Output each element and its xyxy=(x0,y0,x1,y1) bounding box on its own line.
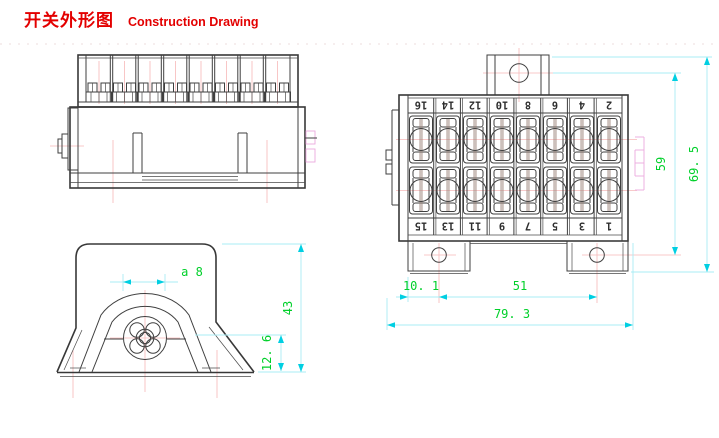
side-view-left-connector xyxy=(58,108,78,170)
terminal-number: 5 xyxy=(552,220,558,232)
terminal-number: 13 xyxy=(442,220,455,232)
dim-hole-offset-and-spacing: 10. 1 51 xyxy=(396,277,597,302)
drawing-svg: a 8 43 12. 6 xyxy=(0,0,719,438)
terminal-number: 14 xyxy=(442,99,455,111)
top-view-right-hidden-connector xyxy=(635,137,644,190)
dim-label-695: 69. 5 xyxy=(687,146,701,182)
top-mounting-tab xyxy=(487,55,549,95)
dim-screw-width: a 8 xyxy=(110,265,203,291)
terminal-number: 6 xyxy=(552,99,558,111)
top-view: 16 14 12 10 8 6 4 2 15 13 11 9 7 5 3 1 xyxy=(386,48,714,330)
terminal-number: 15 xyxy=(415,220,428,232)
side-view xyxy=(50,55,317,203)
drawing-sheet: 开关外形图 Construction Drawing xyxy=(0,0,719,438)
end-view: a 8 43 12. 6 xyxy=(57,244,306,398)
terminal-number: 16 xyxy=(415,99,428,111)
dim-label-59: 59 xyxy=(654,157,668,171)
terminal-number: 8 xyxy=(525,99,531,111)
dim-height-59: 59 xyxy=(553,73,681,255)
terminal-number: 10 xyxy=(496,99,509,111)
terminal-number: 4 xyxy=(579,99,585,111)
terminal-number: 9 xyxy=(499,220,505,232)
dim-label-793: 79. 3 xyxy=(494,307,530,321)
terminal-number: 2 xyxy=(606,99,612,111)
terminal-number: 3 xyxy=(579,220,585,232)
dim-label-43: 43 xyxy=(281,301,295,315)
dim-label-a8: a 8 xyxy=(181,265,203,279)
side-view-clamps xyxy=(86,83,291,102)
terminal-number: 1 xyxy=(606,220,612,232)
top-view-centerlines xyxy=(396,48,681,303)
terminal-number: 11 xyxy=(469,220,482,232)
terminal-number: 7 xyxy=(525,220,531,232)
side-view-body xyxy=(70,107,305,188)
terminal-number: 12 xyxy=(469,99,482,111)
dim-label-126: 12. 6 xyxy=(260,335,274,371)
dim-height-695: 69. 5 xyxy=(552,57,714,272)
dim-label-51: 51 xyxy=(513,279,527,293)
bottom-mounting-tabs xyxy=(408,241,628,274)
side-view-right-hidden-connector xyxy=(305,131,317,162)
dim-label-101: 10. 1 xyxy=(403,279,439,293)
